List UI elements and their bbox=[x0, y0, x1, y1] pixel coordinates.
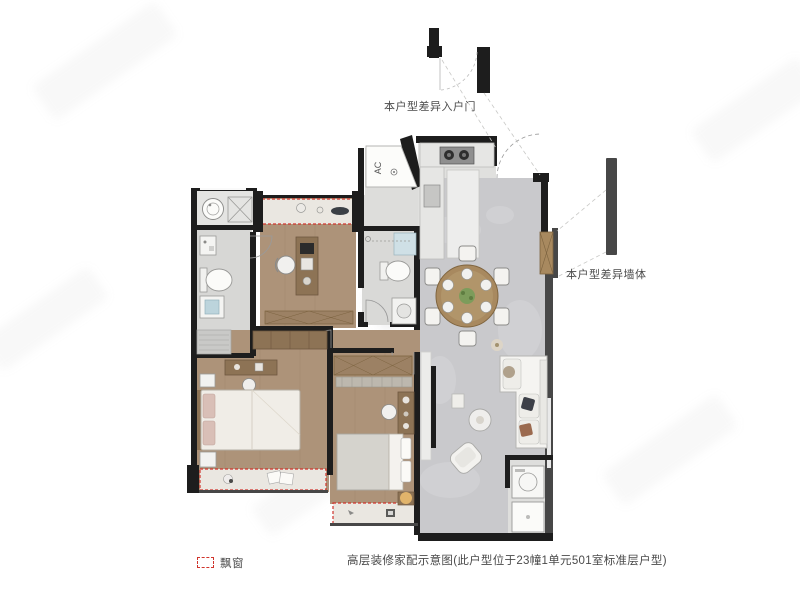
bed bbox=[337, 434, 390, 490]
vanity-desk bbox=[225, 360, 277, 375]
toilet-icon bbox=[386, 261, 410, 281]
chair bbox=[382, 405, 397, 420]
tv-icon bbox=[431, 366, 436, 448]
sink-icon bbox=[397, 304, 411, 318]
nightstand bbox=[200, 374, 215, 387]
low-cabinet bbox=[265, 311, 353, 324]
sink-icon bbox=[205, 300, 219, 314]
plan-caption: 高层装修家配示意图(此户型位于23幢1单元501室标准层户型) bbox=[347, 552, 667, 568]
floorplan-page: AC 本户型差异入户门 本户型差异墙体 飘窗 高层装修家配示意图(此户型位于23… bbox=[0, 0, 800, 600]
wall-diff-label: 本户型差异墙体 bbox=[566, 266, 647, 282]
ac-label: AC bbox=[373, 161, 383, 174]
bay-window-legend-swatch bbox=[197, 557, 214, 568]
plant-icon bbox=[459, 288, 475, 304]
entry-diff-label: 本户型差异入户门 bbox=[384, 98, 476, 114]
kitchen-sink-icon bbox=[424, 185, 440, 207]
chair bbox=[277, 256, 295, 274]
nightstand bbox=[200, 452, 216, 467]
floor-plan: AC bbox=[0, 0, 800, 600]
toilet-icon bbox=[206, 269, 232, 291]
lamp-icon bbox=[400, 492, 412, 504]
sideboard-cabinet bbox=[540, 232, 553, 274]
bed bbox=[201, 390, 300, 450]
washing-machine-icon bbox=[203, 199, 224, 220]
wall-diff-annotation bbox=[557, 158, 617, 277]
wardrobe bbox=[334, 356, 412, 375]
tv-console bbox=[421, 352, 431, 460]
side-table bbox=[452, 394, 464, 408]
shower-mat bbox=[197, 330, 231, 354]
bay-window-legend-label: 飘窗 bbox=[220, 555, 244, 571]
decor-icon bbox=[331, 207, 349, 215]
